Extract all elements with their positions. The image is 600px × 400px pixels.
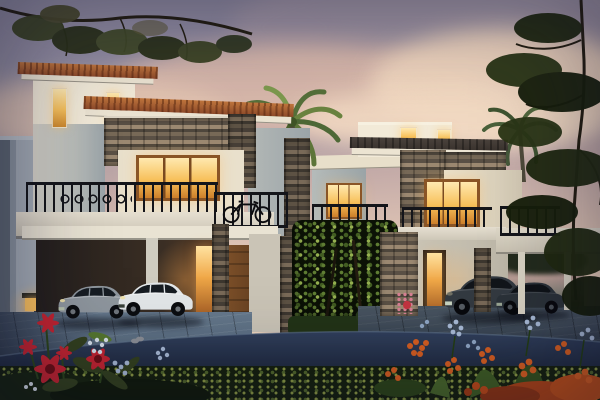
villa-left-tower-window bbox=[52, 88, 67, 128]
tree-right bbox=[486, 0, 600, 330]
balcony-railing-scrollwork bbox=[58, 189, 132, 209]
tree-branch-topleft bbox=[0, 0, 262, 84]
villa-left-entry-wall bbox=[249, 234, 281, 332]
villa-right-entry-door-lit bbox=[427, 253, 442, 313]
villa-dusk-photo bbox=[0, 0, 600, 400]
bicycle bbox=[220, 196, 276, 224]
flower-bed-left bbox=[0, 295, 240, 400]
flower-bed-right bbox=[330, 308, 600, 400]
